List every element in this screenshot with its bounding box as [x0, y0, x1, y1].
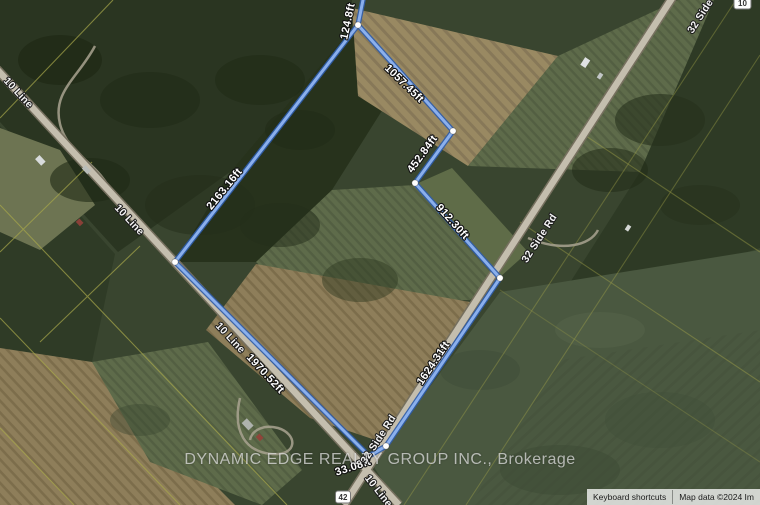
svg-text:42: 42: [339, 493, 348, 502]
satellite-imagery: 124.8ft 1057.45ft 452.84ft 912.30ft 1624…: [0, 0, 760, 505]
boundary-vertex-handle[interactable]: [497, 275, 503, 281]
brokerage-watermark: DYNAMIC EDGE REALTY GROUP INC., Brokerag…: [184, 451, 575, 469]
map-data-credit: Map data ©2024 Im: [672, 490, 760, 504]
map-canvas[interactable]: 124.8ft 1057.45ft 452.84ft 912.30ft 1624…: [0, 0, 760, 505]
boundary-vertex-handle[interactable]: [172, 259, 178, 265]
map-attribution-bar: Keyboard shortcuts Map data ©2024 Im: [587, 489, 760, 505]
boundary-vertex-handle[interactable]: [412, 180, 418, 186]
road-shield-10: 10: [734, 0, 751, 9]
road-shield-42: 42: [336, 491, 351, 503]
boundary-vertex-handle[interactable]: [383, 443, 389, 449]
boundary-vertex-handle[interactable]: [450, 128, 456, 134]
boundary-vertex-handle[interactable]: [355, 22, 361, 28]
svg-text:10: 10: [738, 0, 747, 8]
keyboard-shortcuts-link[interactable]: Keyboard shortcuts: [587, 490, 672, 504]
